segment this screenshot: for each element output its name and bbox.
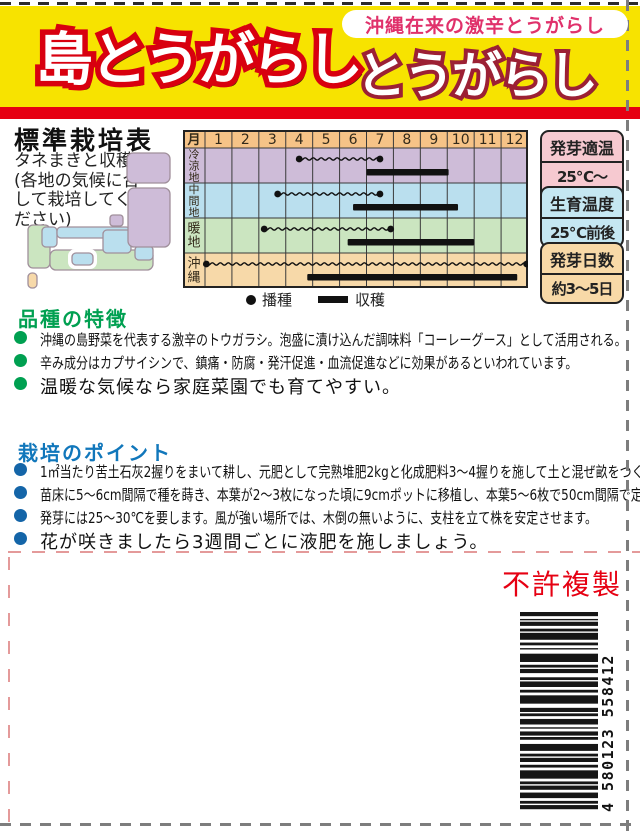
japan-map-illustration (15, 150, 180, 295)
cut-line-vertical (8, 557, 10, 823)
svg-text:10: 10 (452, 132, 470, 148)
info-box-label: 生育温度 (542, 188, 622, 219)
bullet-icon (14, 486, 27, 499)
tagline: 沖縄在来の激辛とうがらし (365, 11, 605, 38)
svg-text:7: 7 (375, 132, 384, 148)
calendar-legend: 播種 収穫 (246, 289, 385, 310)
bullet-icon (14, 463, 27, 476)
svg-text:地: 地 (187, 236, 200, 251)
main-title: 島とうがらし (36, 14, 360, 96)
sow-dot-icon (246, 295, 256, 305)
sub-title: とうがらし (356, 36, 596, 108)
bullet-icon (14, 532, 27, 545)
svg-text:地: 地 (189, 206, 200, 219)
bullet-icon (14, 331, 27, 344)
barcode-number: 4 580123 558412 (599, 612, 617, 812)
bullet-text: 発芽には25〜30℃を要します。風が強い場所では、木倒の無いように、支柱を立て株… (40, 507, 597, 528)
bullet-text: 辛み成分はカプサイシンで、鎮痛・防腐・発汗促進・血流促進などに効果があるといわれ… (40, 352, 577, 373)
svg-text:1: 1 (214, 132, 223, 148)
svg-text:2: 2 (241, 132, 250, 148)
info-box-growth-temp: 生育温度 25℃前後 (540, 186, 624, 248)
point-item: 1㎡当たり苦土石灰2握りをまいて耕し、元肥として完熟堆肥2kgと化成肥料3〜4握… (12, 461, 640, 480)
harvest-bar-icon (318, 296, 348, 303)
svg-text:4: 4 (295, 132, 304, 148)
cultivation-calendar: 月123456789101112冷涼地中間地暖地沖縄 (183, 130, 528, 288)
bullet-text: 1㎡当たり苦土石灰2握りをまいて耕し、元肥として完熟堆肥2kgと化成肥料3〜4握… (40, 461, 640, 482)
tagline-pill: 沖縄在来の激辛とうがらし (342, 10, 628, 38)
svg-text:暖: 暖 (187, 222, 200, 237)
perforation-right (626, 0, 629, 831)
svg-text:3: 3 (268, 132, 277, 148)
point-item: 発芽には25〜30℃を要します。風が強い場所では、木倒の無いように、支柱を立て株… (12, 507, 640, 526)
feature-list: 沖縄の島野菜を代表する激辛のトウガラシ。泡盛に漬け込んだ調味料「コーレーグース」… (12, 329, 640, 398)
svg-text:沖: 沖 (187, 257, 200, 272)
point-item: 花が咲きましたら3週間ごとに液肥を施しましょう。 (12, 530, 640, 549)
barcode (520, 612, 598, 812)
features-title: 品種の特徴 (18, 303, 128, 332)
feature-item: 辛み成分はカプサイシンで、鎮痛・防腐・発汗促進・血流促進などに効果があるといわれ… (12, 352, 640, 371)
svg-text:12: 12 (506, 132, 524, 148)
bullet-text: 苗床に5〜6cm間隔で種を蒔き、本葉が2〜3枚になった頃に9cmポットに移植し、… (40, 484, 640, 505)
svg-text:9: 9 (429, 132, 438, 148)
point-list: 1㎡当たり苦土石灰2握りをまいて耕し、元肥として完熟堆肥2kgと化成肥料3〜4握… (12, 461, 640, 553)
svg-text:6: 6 (349, 132, 358, 148)
no-copy-label: 不許複製 (502, 563, 622, 603)
bullet-icon (14, 377, 27, 390)
svg-text:縄: 縄 (187, 271, 200, 286)
bullet-icon (14, 509, 27, 522)
feature-item: 沖縄の島野菜を代表する激辛のトウガラシ。泡盛に漬け込んだ調味料「コーレーグース」… (12, 329, 640, 348)
bullet-text: 温暖な気候なら家庭菜園でも育てやすい。 (40, 373, 401, 399)
sow-label: 播種 (262, 289, 292, 310)
svg-text:月: 月 (186, 133, 200, 148)
point-item: 苗床に5〜6cm間隔で種を蒔き、本葉が2〜3枚になった頃に9cmポットに移植し、… (12, 484, 640, 503)
bullet-text: 沖縄の島野菜を代表する激辛のトウガラシ。泡盛に漬け込んだ調味料「コーレーグース」… (40, 329, 627, 350)
svg-text:8: 8 (402, 132, 411, 148)
perforation-top (0, 2, 640, 5)
info-box-germination-days: 発芽日数 約3〜5日 (540, 242, 624, 304)
perforation-bottom (0, 823, 640, 826)
svg-text:11: 11 (479, 132, 497, 148)
header-red-stripe (0, 107, 640, 119)
info-box-label: 発芽日数 (542, 244, 622, 275)
cut-line-horizontal (8, 551, 640, 553)
info-box-value: 約3〜5日 (542, 275, 622, 302)
svg-text:5: 5 (322, 132, 331, 148)
info-box-label: 発芽適温 (542, 132, 622, 163)
feature-item: 温暖な気候なら家庭菜園でも育てやすい。 (12, 375, 640, 394)
svg-text:地: 地 (189, 171, 200, 184)
seed-packet-back: 島とうがらし 沖縄在来の激辛とうがらし とうがらし 標準栽培表 タネまきと収穫 … (0, 0, 640, 831)
bullet-icon (14, 354, 27, 367)
harvest-label: 収穫 (355, 289, 385, 310)
